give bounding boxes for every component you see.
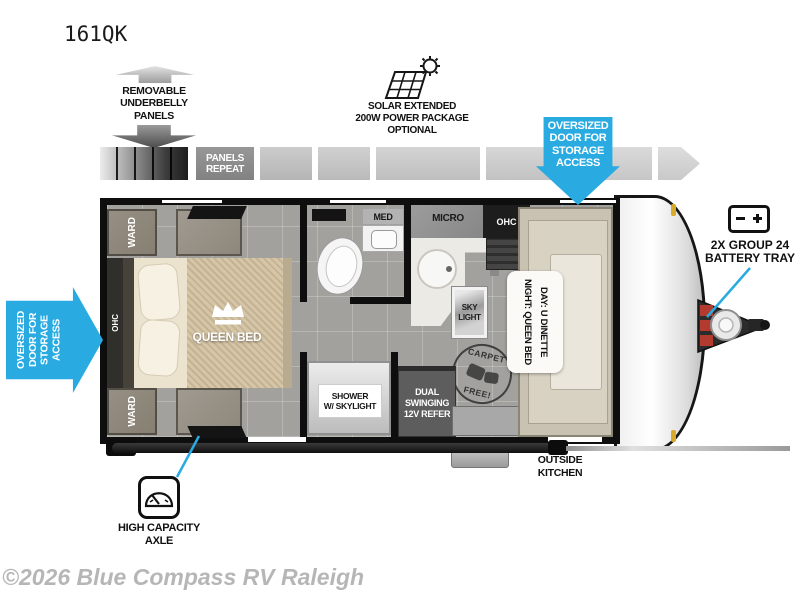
clearance-light xyxy=(671,430,676,442)
outside-kitchen-label: OUTSIDE KITCHEN xyxy=(520,454,600,479)
wardrobe-label: WARD xyxy=(127,396,138,427)
bathroom-wall xyxy=(350,297,411,304)
panel-bar-segment xyxy=(376,147,480,180)
storage-door-top-label: OVERSIZED DOOR FOR STORAGE ACCESS xyxy=(536,117,620,169)
clearance-light xyxy=(671,204,676,216)
crown-icon xyxy=(206,299,250,327)
overhead-cabinet-bedroom: OHC xyxy=(107,258,123,388)
solar-panel-icon xyxy=(380,56,442,102)
battery-tray-label: 2X GROUP 24 BATTERY TRAY xyxy=(696,239,800,265)
underbelly-down-arrow-icon xyxy=(112,125,196,148)
hitch-assembly xyxy=(692,296,797,358)
frame-rail-extension xyxy=(566,446,790,451)
bathroom-wall xyxy=(404,205,411,304)
bed-headboard xyxy=(123,258,134,388)
pillow xyxy=(137,319,181,378)
pillow xyxy=(137,262,182,321)
refrigerator-label: DUAL SWINGING 12V REFER xyxy=(399,387,455,419)
shower-wall xyxy=(391,352,398,438)
wardrobe-bottom: WARD xyxy=(107,388,157,435)
wardrobe-label: WARD xyxy=(127,217,138,248)
overhead-cabinet-label: OHC xyxy=(111,314,120,332)
appliance-foot xyxy=(490,270,499,276)
shower: SHOWER W/ SKYLIGHT xyxy=(307,361,391,435)
window-slit xyxy=(560,200,616,203)
high-capacity-axle-label: HIGH CAPACITY AXLE xyxy=(102,522,216,548)
underbelly-label: REMOVABLE UNDERBELLY PANELS xyxy=(98,85,210,122)
window-slit xyxy=(330,200,386,203)
shower-wall xyxy=(300,352,307,438)
frame-rail-knob xyxy=(548,440,568,455)
stamp-texture xyxy=(484,371,499,384)
skylight: SKY LIGHT xyxy=(452,287,487,338)
window-slit xyxy=(162,200,222,203)
storage-door-top-arrow: OVERSIZED DOOR FOR STORAGE ACCESS xyxy=(536,117,620,205)
shower-label: SHOWER W/ SKYLIGHT xyxy=(324,391,376,411)
axle-scale-icon xyxy=(138,476,180,519)
storage-door-left-arrow: OVERSIZED DOOR FOR STORAGE ACCESS xyxy=(6,287,103,393)
refrigerator: DUAL SWINGING 12V REFER xyxy=(398,366,456,437)
entry-door-slit xyxy=(248,437,306,442)
battery-minus-glyph xyxy=(736,217,745,220)
medicine-cabinet: MED xyxy=(363,209,403,224)
frame-rail xyxy=(112,443,554,453)
dinette-label-card: DAY: U DINETTE NIGHT: QUEEN BED xyxy=(507,271,563,373)
shower-label-panel: SHOWER W/ SKYLIGHT xyxy=(318,384,382,418)
underbelly-up-arrow-icon xyxy=(116,66,194,83)
solar-label: SOLAR EXTENDED 200W POWER PACKAGE OPTION… xyxy=(342,101,482,136)
panel-bar-segment xyxy=(260,147,312,180)
bed-foot-rail xyxy=(283,258,292,388)
watermark: ©2026 Blue Compass RV Raleigh xyxy=(2,564,364,591)
overhead-cabinet-label: OHC xyxy=(497,217,517,227)
storage-door-left-label: OVERSIZED DOOR FOR STORAGE ACCESS xyxy=(16,311,63,369)
panel-bar-segment xyxy=(318,147,370,180)
microwave-label: MICRO xyxy=(411,213,485,224)
bathroom-sink xyxy=(362,225,404,252)
panel-bar-arrow-segment xyxy=(658,147,700,180)
kitchen-faucet xyxy=(446,266,452,272)
bathroom-window xyxy=(312,209,346,221)
panel-bar-repeat-segment: PANELS REPEAT xyxy=(196,147,254,180)
bedroom-window xyxy=(187,206,247,219)
outside-kitchen-door xyxy=(452,406,522,436)
bathroom-wall xyxy=(300,205,307,302)
skylight-label: SKY LIGHT xyxy=(458,303,481,321)
toilet-seat xyxy=(321,242,361,290)
panel-bar-ribbed-segment xyxy=(100,147,188,180)
battery-icon xyxy=(728,205,770,233)
page-title: 161QK xyxy=(64,22,127,46)
queen-bed-label: QUEEN BED xyxy=(170,330,284,344)
panels-repeat-label: PANELS REPEAT xyxy=(206,153,244,175)
medicine-cabinet-label: MED xyxy=(373,212,392,222)
dinette-label: DAY: U DINETTE NIGHT: QUEEN BED xyxy=(519,279,551,365)
wardrobe-top: WARD xyxy=(107,209,157,256)
sink-basin xyxy=(371,230,397,249)
kitchen-upper-counter: MICRO xyxy=(411,205,485,239)
bedroom-window xyxy=(187,426,246,438)
battery-plus-glyph xyxy=(756,214,759,223)
floorplan-diagram: 161QK REMOVABLE UNDERBELLY PANELS SOLAR … xyxy=(0,0,800,600)
